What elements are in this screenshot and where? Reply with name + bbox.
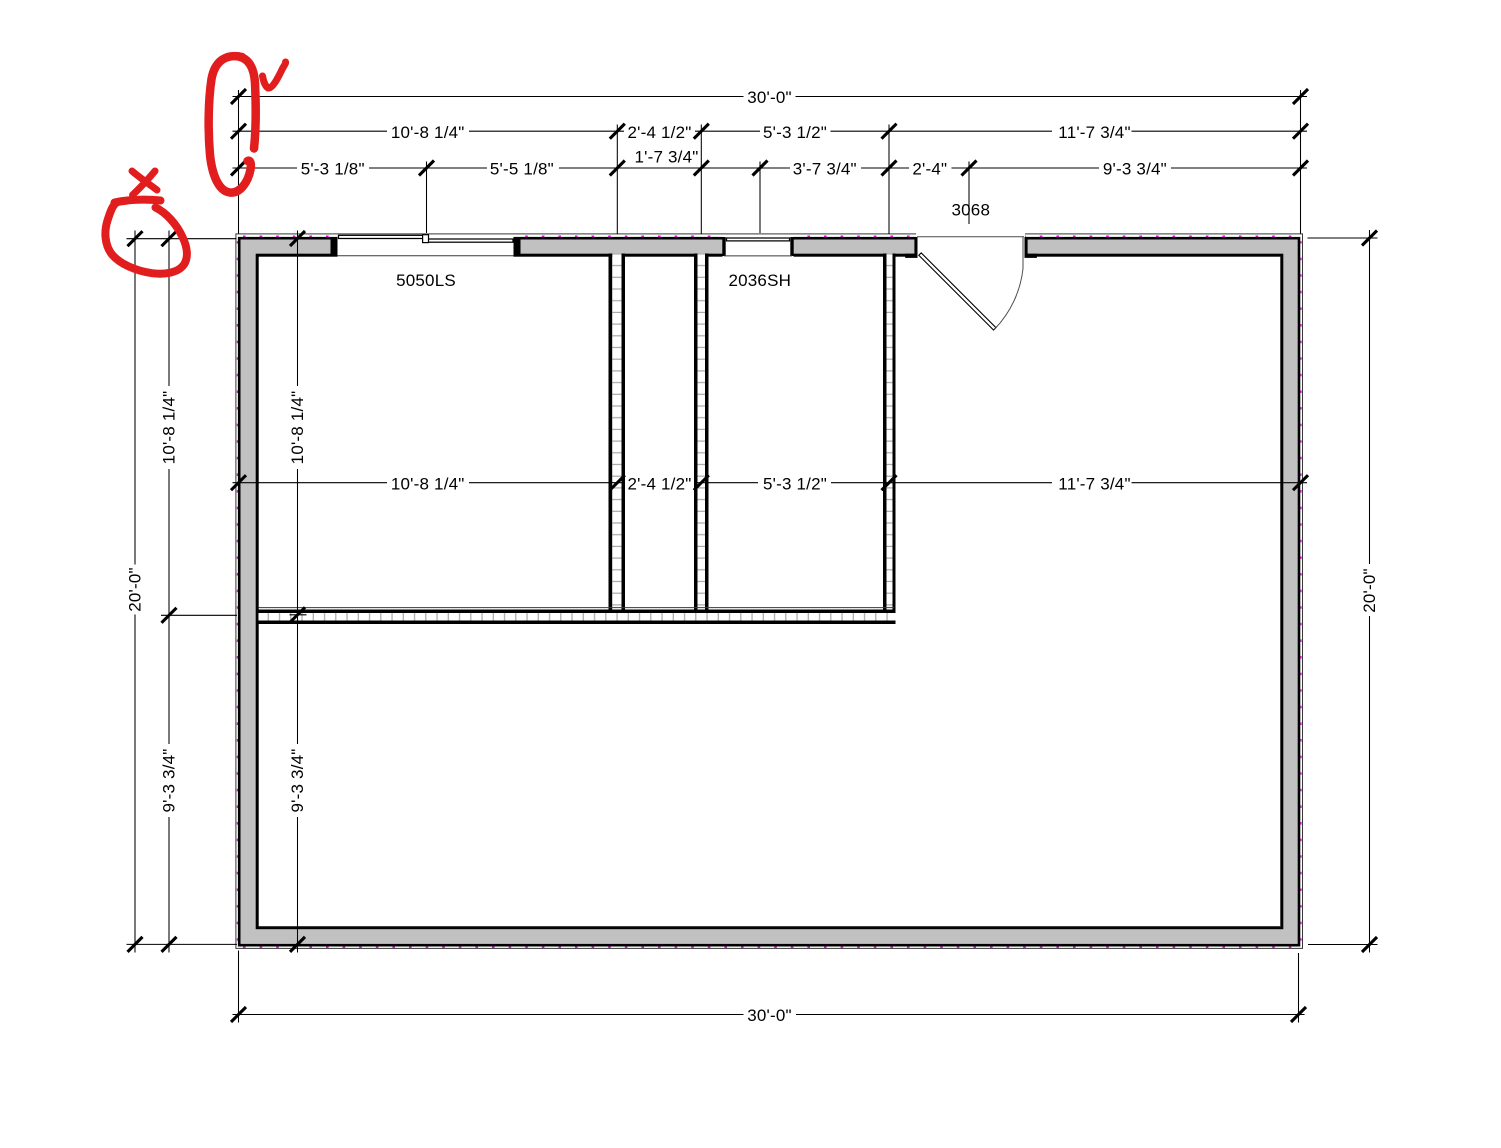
svg-text:10'-8 1/4": 10'-8 1/4" [288, 391, 307, 465]
svg-text:2'-4 1/2": 2'-4 1/2" [627, 474, 691, 493]
svg-text:11'-7 3/4": 11'-7 3/4" [1058, 123, 1130, 142]
svg-text:30'-0": 30'-0" [747, 1006, 792, 1025]
svg-text:11'-7 3/4": 11'-7 3/4" [1058, 474, 1130, 493]
svg-text:5'-5 1/8": 5'-5 1/8" [490, 160, 554, 179]
svg-text:10'-8 1/4": 10'-8 1/4" [160, 391, 179, 465]
svg-text:2'-4": 2'-4" [912, 160, 947, 179]
svg-text:20'-0": 20'-0" [126, 567, 145, 612]
svg-text:5'-3 1/2": 5'-3 1/2" [763, 474, 827, 493]
svg-text:3'-7 3/4": 3'-7 3/4" [793, 160, 857, 179]
svg-text:2'-4 1/2": 2'-4 1/2" [627, 123, 691, 142]
svg-text:3068: 3068 [951, 200, 990, 219]
svg-text:10'-8 1/4": 10'-8 1/4" [391, 474, 465, 493]
svg-text:9'-3 3/4": 9'-3 3/4" [160, 748, 179, 812]
svg-text:30'-0": 30'-0" [747, 88, 792, 107]
svg-text:10'-8 1/4": 10'-8 1/4" [391, 123, 465, 142]
svg-text:5050LS: 5050LS [396, 271, 456, 290]
svg-text:9'-3 3/4": 9'-3 3/4" [288, 748, 307, 812]
svg-text:5'-3 1/8": 5'-3 1/8" [301, 160, 365, 179]
svg-text:5'-3 1/2": 5'-3 1/2" [763, 123, 827, 142]
svg-text:2036SH: 2036SH [728, 271, 791, 290]
svg-text:1'-7 3/4": 1'-7 3/4" [634, 147, 698, 166]
svg-text:9'-3 3/4": 9'-3 3/4" [1103, 160, 1167, 179]
svg-text:20'-0": 20'-0" [1360, 568, 1379, 613]
